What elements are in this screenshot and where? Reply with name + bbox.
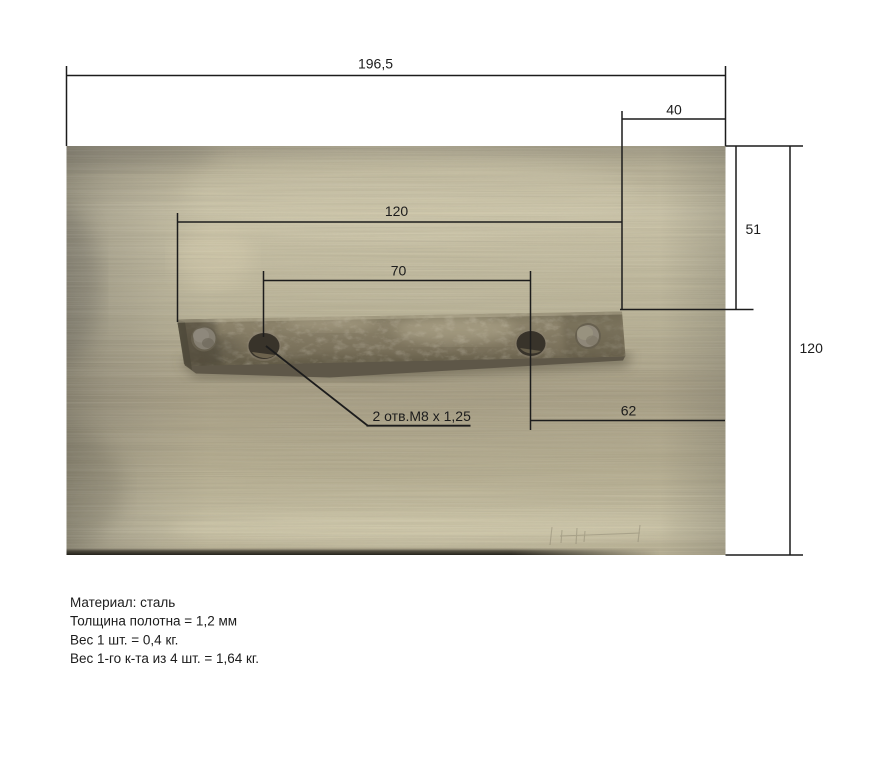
svg-text:40: 40 bbox=[666, 102, 682, 118]
svg-text:Материал: сталь: Материал: сталь bbox=[70, 595, 175, 610]
svg-text:70: 70 bbox=[391, 263, 407, 279]
svg-text:62: 62 bbox=[621, 403, 637, 419]
svg-text:2 отв.М8 х 1,25: 2 отв.М8 х 1,25 bbox=[373, 408, 472, 424]
svg-text:120: 120 bbox=[800, 340, 824, 356]
svg-text:Вес 1-го к-та из 4 шт. = 1,64: Вес 1-го к-та из 4 шт. = 1,64 кг. bbox=[70, 651, 259, 666]
svg-text:196,5: 196,5 bbox=[358, 56, 393, 72]
svg-text:120: 120 bbox=[385, 203, 409, 219]
svg-text:Вес 1 шт. = 0,4 кг.: Вес 1 шт. = 0,4 кг. bbox=[70, 633, 178, 648]
svg-text:Толщина полотна = 1,2 мм: Толщина полотна = 1,2 мм bbox=[70, 614, 237, 629]
svg-text:51: 51 bbox=[746, 221, 762, 237]
